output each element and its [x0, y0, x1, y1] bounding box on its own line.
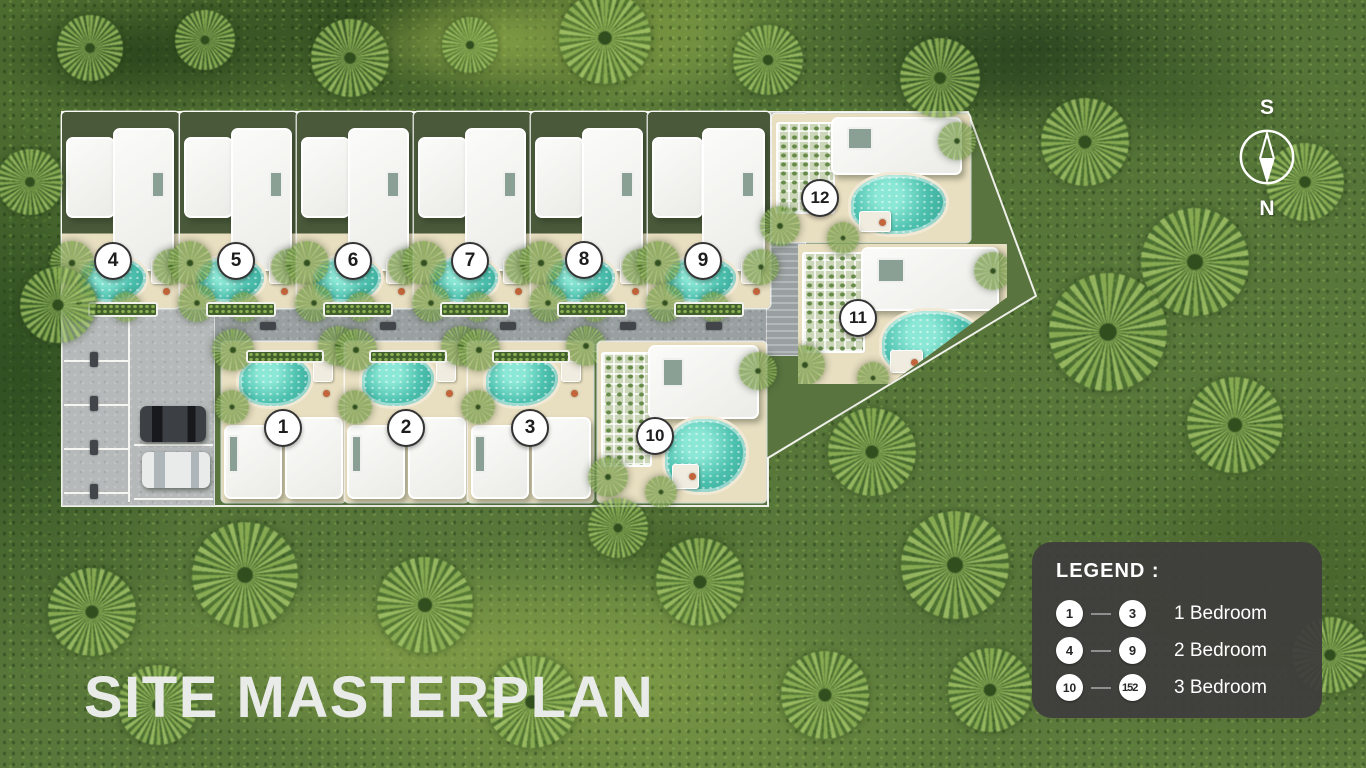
- unit-badge-2: 2: [387, 409, 425, 447]
- unit-badge-3: 3: [511, 409, 549, 447]
- legend-row-3bedroom: 10 152 3 Bedroom: [1056, 669, 1322, 706]
- unit-badge-8: 8: [565, 241, 603, 279]
- legend-row-1bedroom: 1 3 1 Bedroom: [1056, 595, 1322, 632]
- compass-north-label: N: [1236, 197, 1298, 221]
- unit-badge-11: 11: [839, 299, 877, 337]
- compass-rose-icon: [1236, 124, 1298, 190]
- legend-label: 2 Bedroom: [1174, 640, 1267, 662]
- legend-circle-to: 152: [1119, 674, 1146, 701]
- legend-circle-from: 4: [1056, 637, 1083, 664]
- legend-dash: [1091, 650, 1111, 652]
- legend-circle-from: 1: [1056, 600, 1083, 627]
- legend-heading: LEGEND :: [1056, 560, 1322, 583]
- page-title: SITE MASTERPLAN: [84, 664, 654, 731]
- legend-label: 3 Bedroom: [1174, 677, 1267, 699]
- legend-row-2bedroom: 4 9 2 Bedroom: [1056, 632, 1322, 669]
- unit-badge-12: 12: [801, 179, 839, 217]
- unit-badge-5: 5: [217, 242, 255, 280]
- legend-panel: LEGEND : 1 3 1 Bedroom 4 9 2 Bedroom 10 …: [1032, 542, 1322, 718]
- legend-circle-to: 9: [1119, 637, 1146, 664]
- unit-badge-4: 4: [94, 242, 132, 280]
- legend-label: 1 Bedroom: [1174, 603, 1267, 625]
- legend-dash: [1091, 687, 1111, 689]
- legend-circle-to: 3: [1119, 600, 1146, 627]
- compass-south-label: S: [1236, 96, 1298, 120]
- compass: S N: [1236, 96, 1298, 221]
- unit-badge-1: 1: [264, 409, 302, 447]
- unit-badge-10: 10: [636, 417, 674, 455]
- unit-badge-9: 9: [684, 242, 722, 280]
- legend-circle-from: 10: [1056, 674, 1083, 701]
- unit-badge-7: 7: [451, 242, 489, 280]
- site-masterplan-scene: 123456789101112 S N LEGEND : 1 3 1 Bedro…: [0, 0, 1366, 768]
- unit-badge-6: 6: [334, 242, 372, 280]
- legend-dash: [1091, 613, 1111, 615]
